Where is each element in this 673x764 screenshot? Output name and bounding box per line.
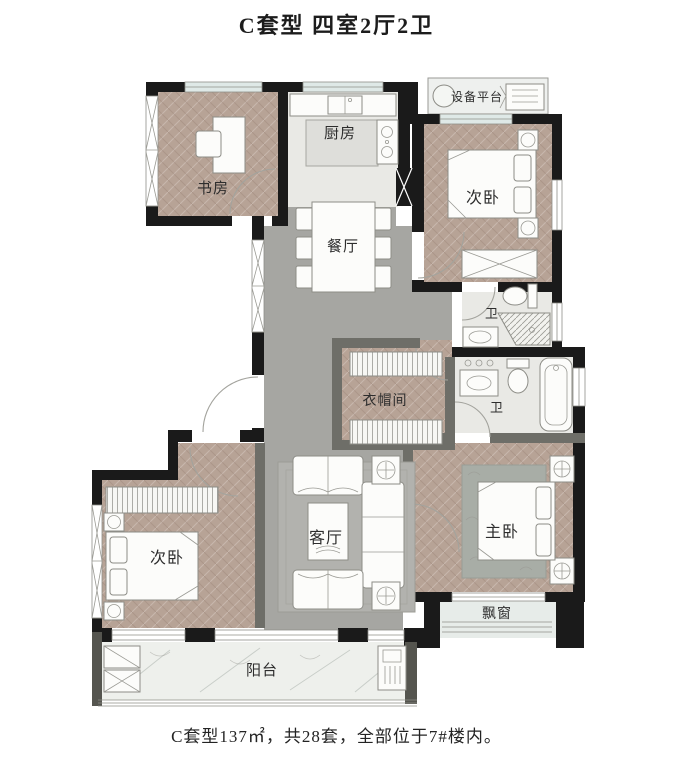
- wall: [92, 470, 178, 480]
- ac-unit: [506, 84, 544, 110]
- wall: [445, 357, 455, 433]
- floorplan-page: C套型 四室2厅2卫: [0, 0, 673, 764]
- bath-lower-label: 卫: [490, 400, 504, 415]
- wall: [556, 596, 584, 648]
- cloakroom-wardrobe: [350, 352, 442, 376]
- wall: [398, 82, 410, 172]
- pillow: [110, 569, 127, 595]
- wall: [185, 628, 215, 642]
- plan-caption: C套型137㎡，共28套，全部位于7#楼内。: [0, 722, 673, 747]
- bedroom-sw-label: 次卧: [150, 549, 184, 567]
- balcony-left-wall: [92, 632, 102, 706]
- window-study-left: [146, 96, 158, 206]
- window-top-kitchen: [303, 82, 383, 92]
- balcony-railing: [98, 700, 417, 706]
- window-top-study: [185, 82, 262, 92]
- equipment-platform-label: 设备平台: [451, 89, 503, 104]
- pillow: [110, 537, 127, 563]
- toilet-bowl: [503, 287, 527, 305]
- wall: [240, 430, 264, 442]
- study-chair: [196, 131, 221, 157]
- toilet-bowl: [508, 369, 528, 393]
- window-master-bay-opening: [452, 593, 545, 601]
- toilet-tank: [507, 359, 529, 368]
- bedroom-ne-label: 次卧: [466, 189, 500, 207]
- window-bath-lower: [573, 368, 585, 406]
- wall: [338, 628, 368, 642]
- window-bedroom-sw-left: [92, 505, 102, 618]
- window-balcony-living: [215, 630, 338, 640]
- pillow: [514, 187, 531, 213]
- washing-machine: [378, 646, 406, 690]
- wall: [412, 282, 462, 292]
- kitchen-label: 厨房: [324, 125, 356, 142]
- master-label: 主卧: [485, 523, 519, 541]
- wall: [490, 433, 585, 443]
- wall: [452, 347, 585, 357]
- wall: [255, 443, 265, 628]
- window-balcony-bedroom: [112, 630, 185, 640]
- wall: [332, 338, 342, 450]
- bay-window-label: 飘窗: [482, 605, 512, 622]
- living-furniture: [278, 456, 415, 612]
- pillow: [514, 155, 531, 181]
- pillow: [536, 487, 551, 519]
- entry-door-arc: [203, 377, 258, 432]
- pillow: [536, 524, 551, 556]
- wall: [412, 114, 424, 232]
- window-bedroom-ne-right: [552, 180, 562, 230]
- window-entry-wall: [252, 240, 264, 332]
- floorplan-svg: 书房 厨房 设备平台 次卧 餐厅 卫 卫 衣帽间 客厅 次卧 主卧 飘窗 阳台: [0, 0, 673, 764]
- wall: [146, 216, 232, 226]
- balcony-right-wall: [405, 642, 417, 704]
- wall: [332, 338, 420, 348]
- window-balcony-right: [368, 630, 404, 640]
- balcony-label: 阳台: [246, 662, 278, 679]
- living-label: 客厅: [309, 529, 343, 547]
- window-bath-upper: [552, 303, 562, 341]
- bedroom-sw-wardrobe: [106, 487, 218, 513]
- bath-lower-sink: [460, 370, 498, 396]
- wall: [278, 82, 288, 226]
- cloakroom-label: 衣帽间: [363, 393, 408, 409]
- cloakroom-wardrobe: [350, 420, 442, 444]
- window-top-bedroom-ne: [440, 114, 512, 124]
- bath-upper-sink: [463, 327, 498, 347]
- dining-label: 餐厅: [327, 238, 359, 255]
- sofa-right: [362, 482, 404, 588]
- toilet-tank: [528, 284, 537, 308]
- bath-upper-label: 卫: [485, 306, 499, 321]
- study-label: 书房: [197, 180, 229, 197]
